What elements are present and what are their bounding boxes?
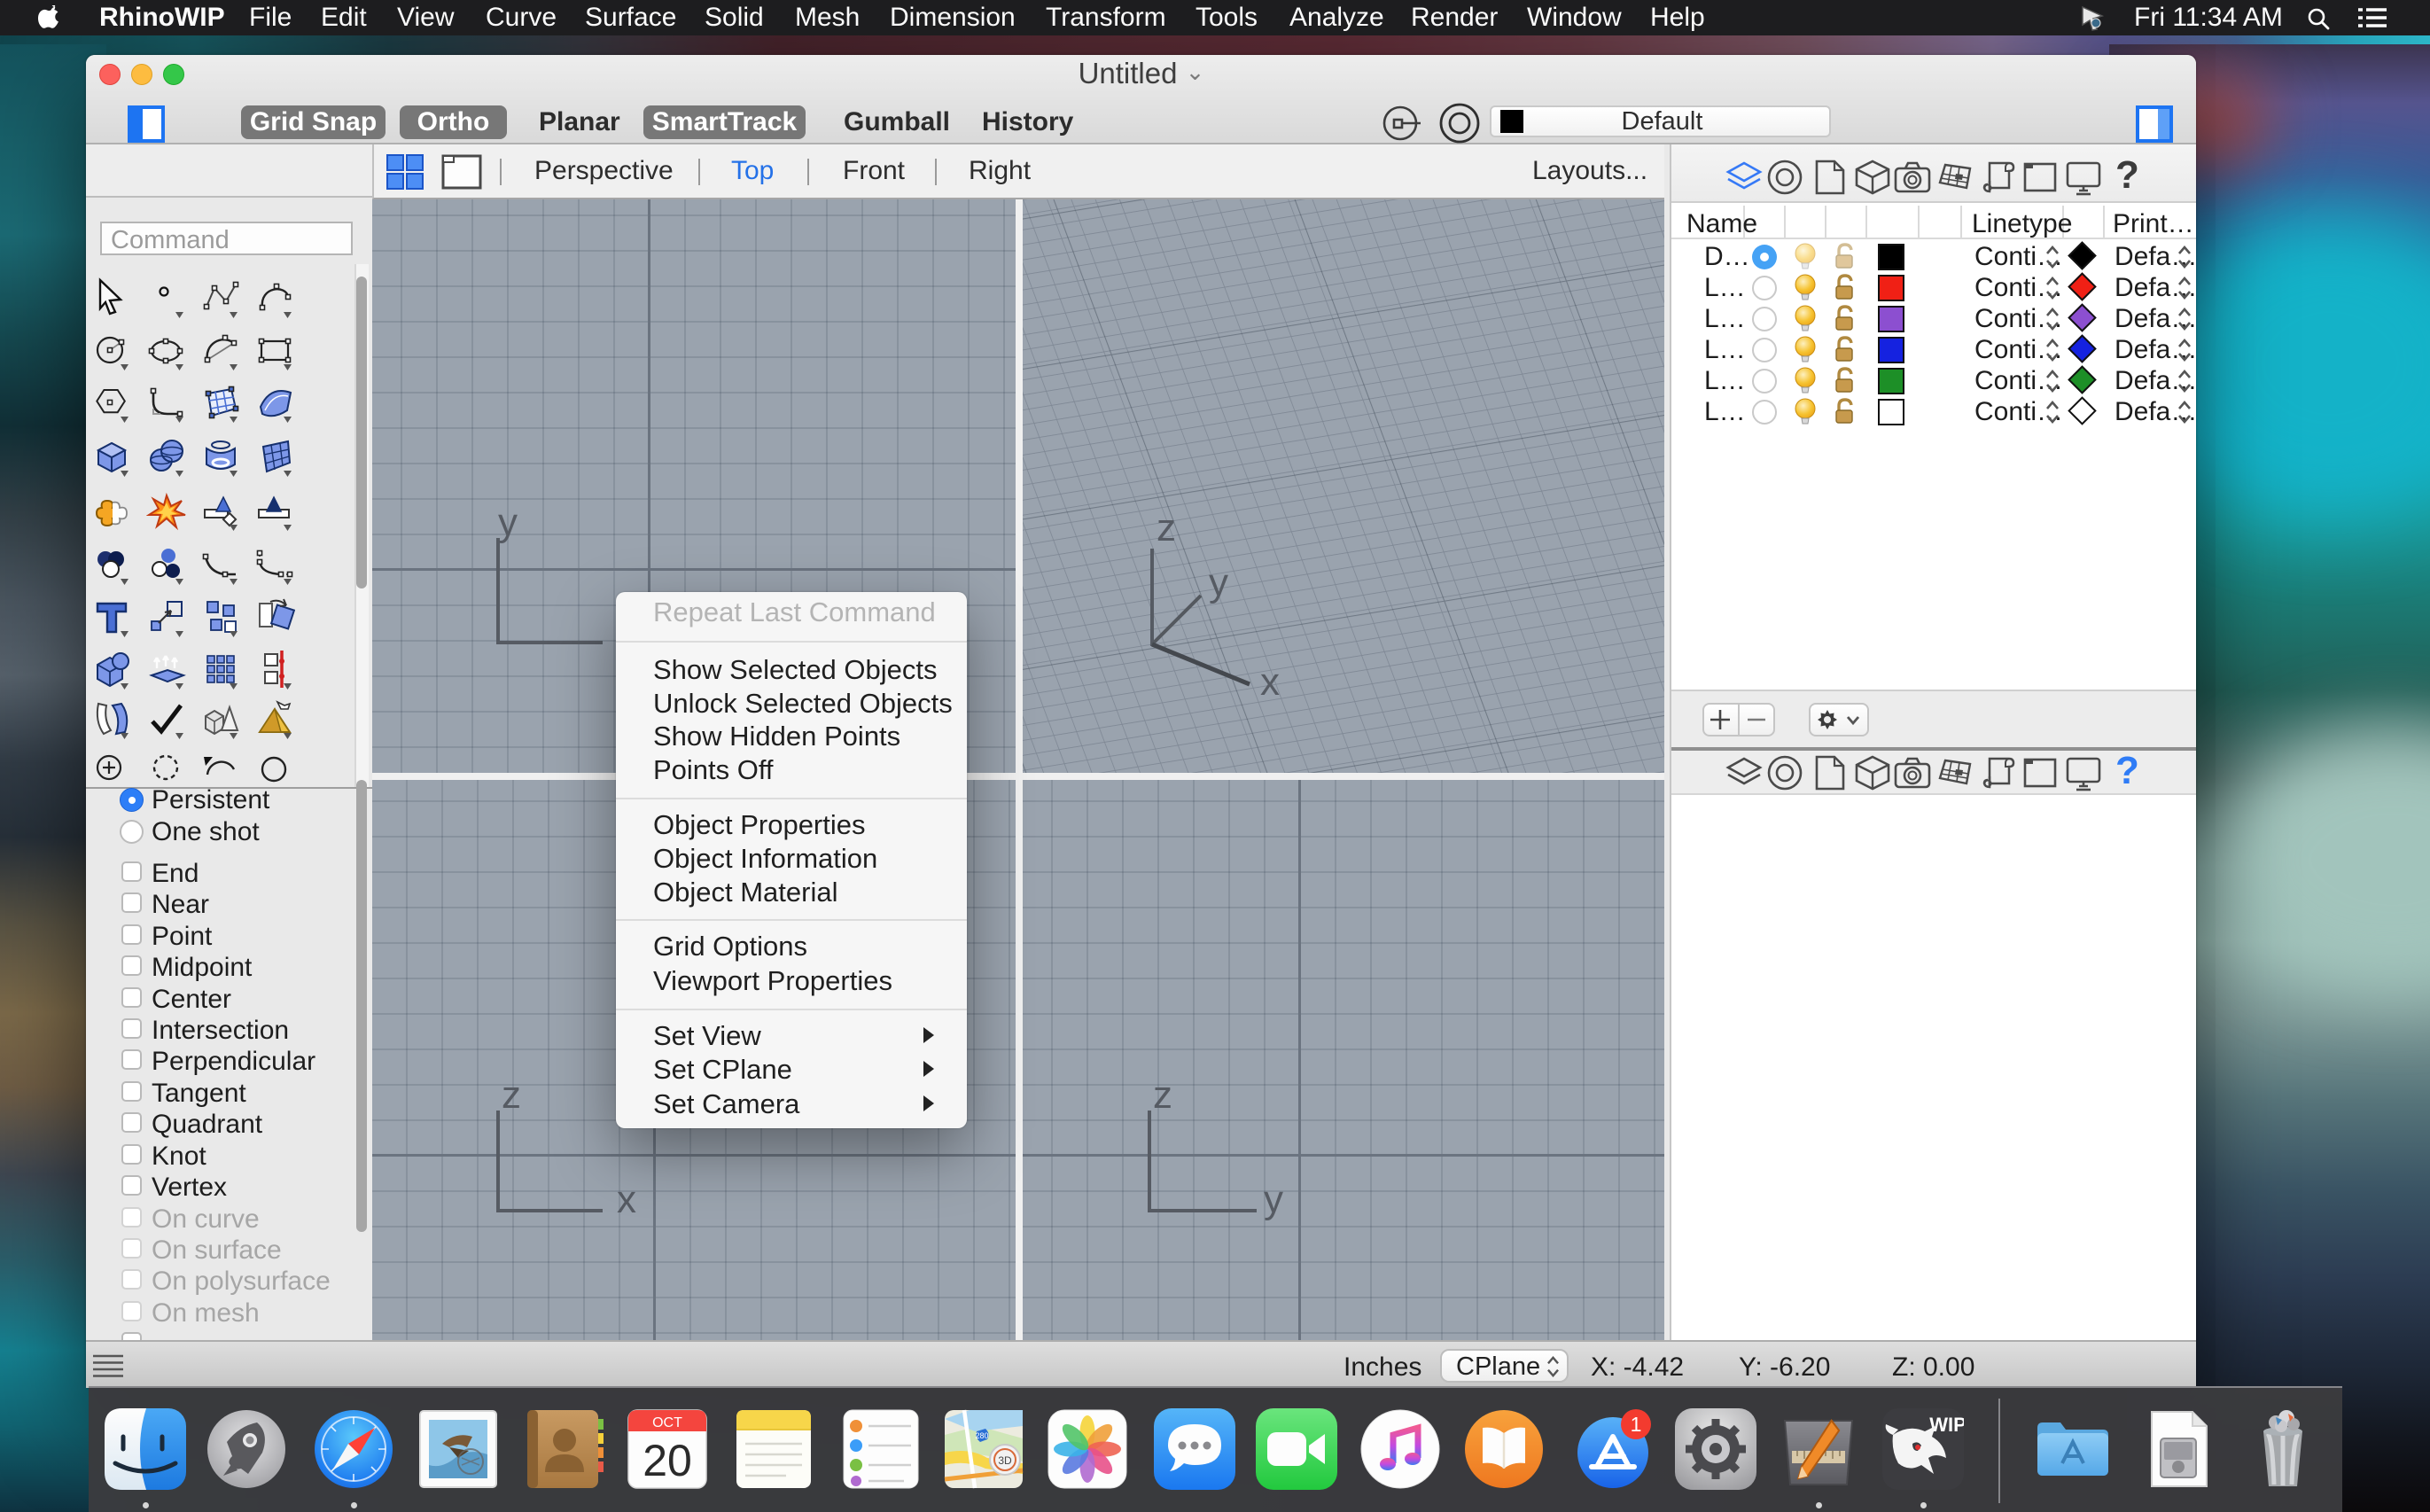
svg-text:1: 1 bbox=[1631, 1413, 1642, 1436]
svg-text:OCT: OCT bbox=[652, 1415, 682, 1430]
svg-text:280: 280 bbox=[975, 1431, 988, 1440]
svg-text:WIP: WIP bbox=[1929, 1414, 1964, 1436]
svg-text:20: 20 bbox=[643, 1436, 692, 1485]
svg-text:3D: 3D bbox=[998, 1454, 1012, 1467]
